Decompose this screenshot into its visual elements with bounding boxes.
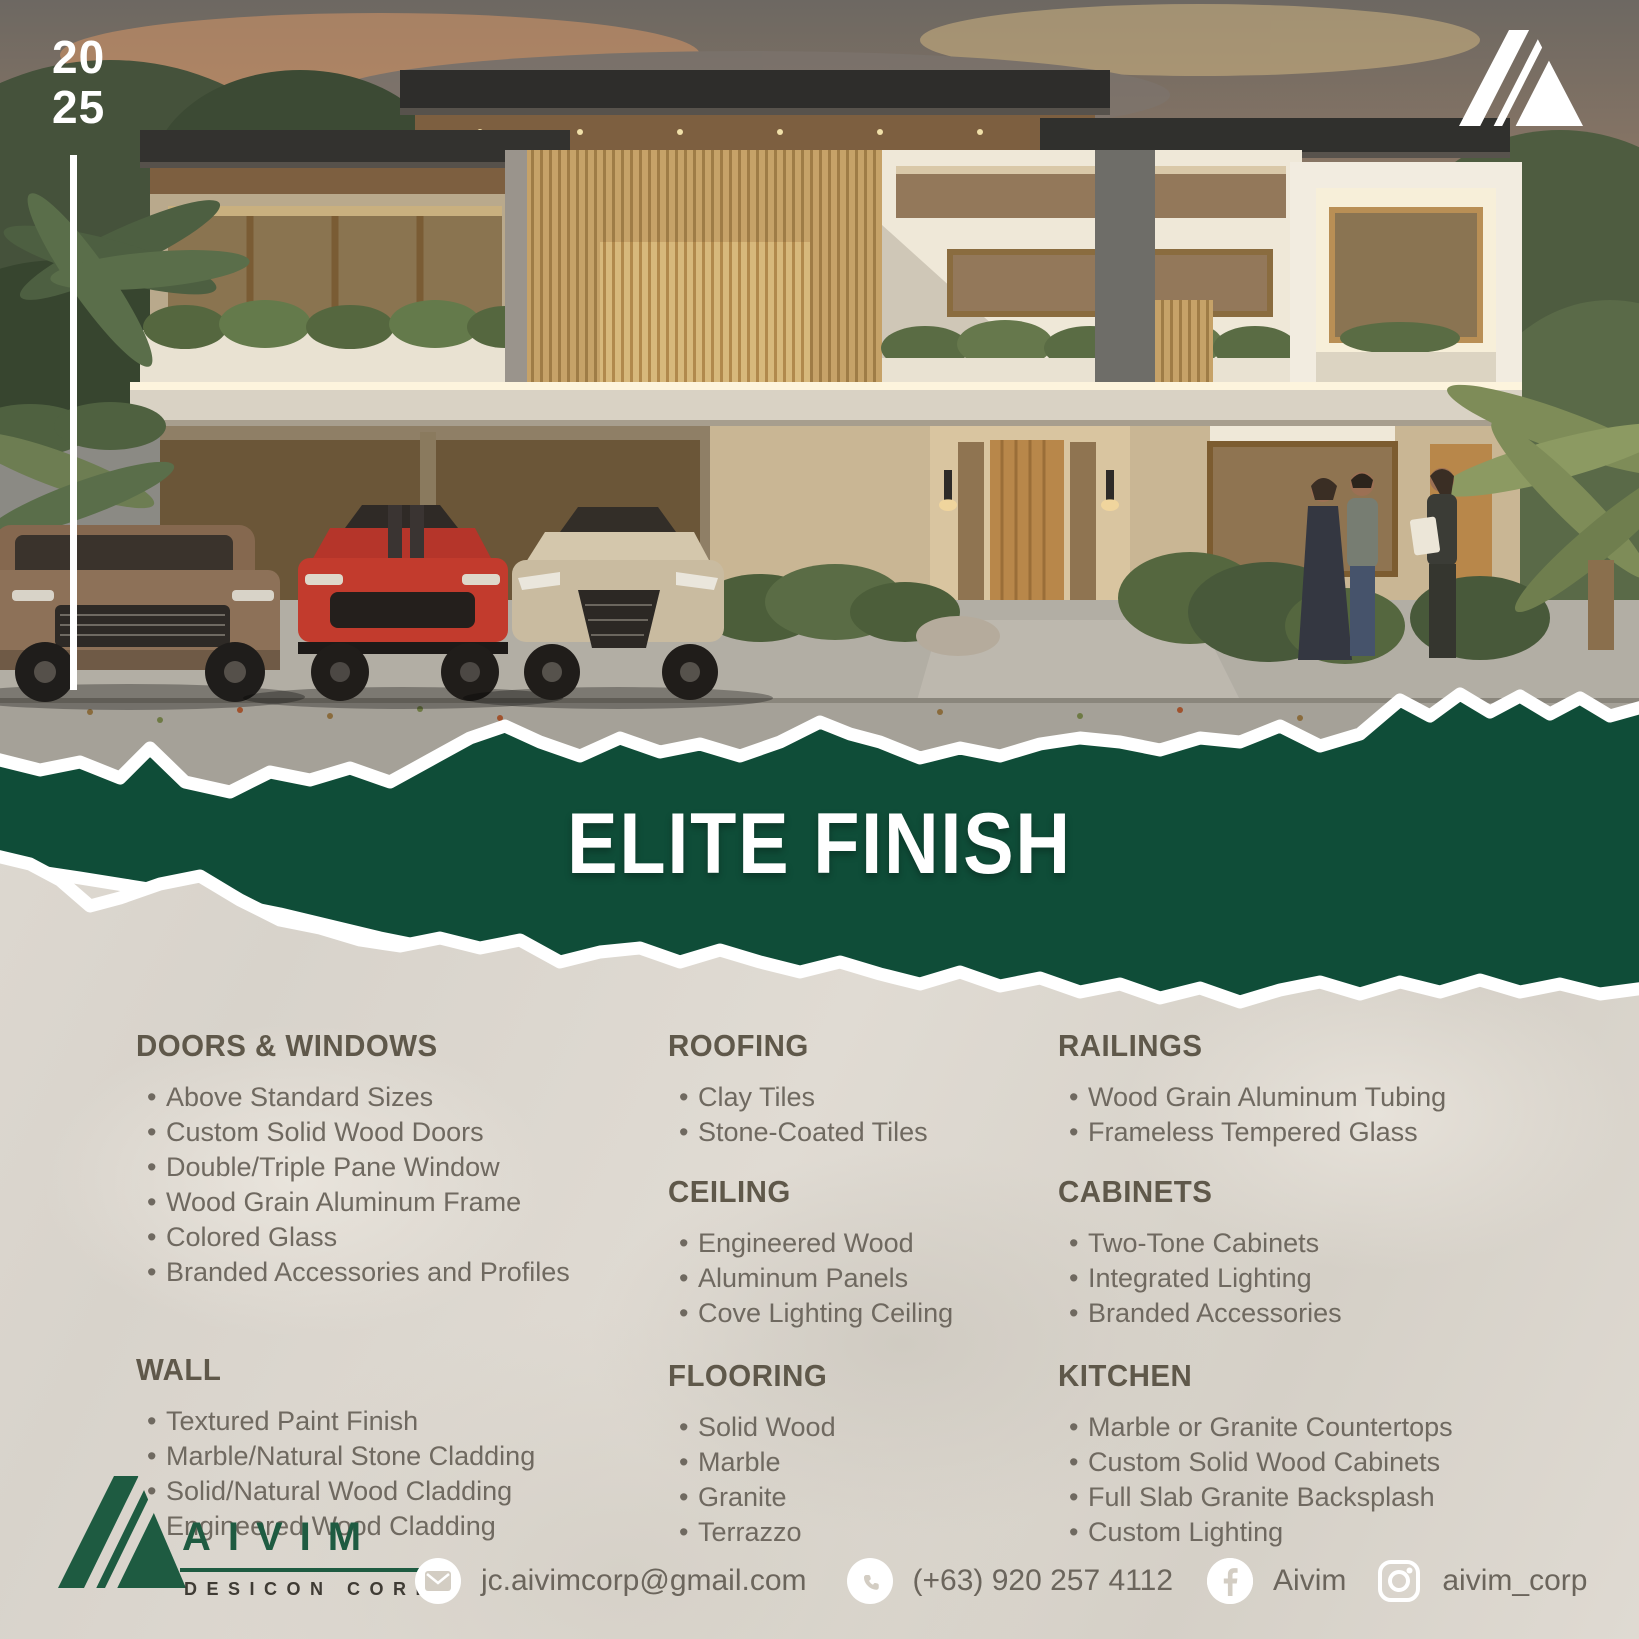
entry-door bbox=[930, 426, 1130, 626]
spec-column-3: RAILINGS Wood Grain Aluminum Tubing Fram… bbox=[1058, 1028, 1588, 1550]
spec-item: Granite bbox=[668, 1480, 1058, 1515]
spec-item: Solid Wood bbox=[668, 1410, 1058, 1445]
email-text: jc.aivimcorp@gmail.com bbox=[481, 1564, 807, 1598]
spec-item: Stone-Coated Tiles bbox=[668, 1115, 1058, 1150]
floor-slab bbox=[130, 390, 1522, 420]
facebook-handle: Aivim bbox=[1273, 1564, 1346, 1598]
contact-facebook: Aivim bbox=[1207, 1558, 1346, 1604]
roof-right bbox=[1040, 118, 1510, 152]
spec-item: Custom Solid Wood Cabinets bbox=[1058, 1445, 1588, 1480]
spec-section-flooring: FLOORING Solid Wood Marble Granite Terra… bbox=[668, 1358, 1058, 1550]
spec-item: Cove Lighting Ceiling bbox=[668, 1296, 1058, 1331]
spec-item: Marble bbox=[668, 1445, 1058, 1480]
spec-item: Above Standard Sizes bbox=[136, 1080, 636, 1115]
person-man bbox=[1347, 498, 1378, 568]
section-title: WALL bbox=[136, 1352, 611, 1388]
phone-text: (+63) 920 257 4112 bbox=[913, 1564, 1174, 1598]
phone-icon bbox=[847, 1558, 893, 1604]
spec-item: Custom Solid Wood Doors bbox=[136, 1115, 636, 1150]
spec-section-kitchen: KITCHEN Marble or Granite Countertops Cu… bbox=[1058, 1358, 1588, 1550]
section-title: CEILING bbox=[668, 1174, 1039, 1210]
spec-item: Branded Accessories bbox=[1058, 1296, 1588, 1331]
brand-subtitle: DESICON CORP bbox=[180, 1572, 437, 1600]
spec-item: Frameless Tempered Glass bbox=[1058, 1115, 1588, 1150]
hero-image bbox=[0, 0, 1639, 830]
spec-item: Clay Tiles bbox=[668, 1080, 1058, 1115]
section-title: FLOORING bbox=[668, 1358, 1039, 1394]
envelope-icon bbox=[415, 1558, 461, 1604]
footer-contacts: jc.aivimcorp@gmail.com (+63) 920 257 411… bbox=[415, 1558, 1587, 1604]
spec-column-2: ROOFING Clay Tiles Stone-Coated Tiles CE… bbox=[668, 1028, 1058, 1550]
spec-item: Custom Lighting bbox=[1058, 1515, 1588, 1550]
footer-brand-text: AIVIM DESICON CORP bbox=[180, 1515, 437, 1602]
house-illustration bbox=[0, 0, 1639, 830]
footer-brand-logo: AIVIM DESICON CORP bbox=[56, 1462, 437, 1602]
spec-section-doors-windows: DOORS & WINDOWS Above Standard Sizes Cus… bbox=[136, 1028, 636, 1290]
section-title: DOORS & WINDOWS bbox=[136, 1028, 611, 1064]
spec-item: Two-Tone Cabinets bbox=[1058, 1226, 1588, 1261]
spec-item: Branded Accessories and Profiles bbox=[136, 1255, 636, 1290]
banner-title: ELITE FINISH bbox=[98, 796, 1540, 892]
frame-box-window bbox=[1290, 162, 1522, 408]
section-title: ROOFING bbox=[668, 1028, 1039, 1064]
spec-item: Aluminum Panels bbox=[668, 1261, 1058, 1296]
spec-section-roofing: ROOFING Clay Tiles Stone-Coated Tiles bbox=[668, 1028, 1058, 1150]
spec-item: Colored Glass bbox=[136, 1220, 636, 1255]
brand-name: AIVIM bbox=[180, 1515, 437, 1572]
spec-item: Textured Paint Finish bbox=[136, 1404, 636, 1439]
a-mark-icon bbox=[1449, 22, 1587, 130]
roof-main bbox=[400, 70, 1110, 108]
contact-instagram: aivim_corp bbox=[1376, 1558, 1587, 1604]
spec-section-cabinets: CABINETS Two-Tone Cabinets Integrated Li… bbox=[1058, 1174, 1588, 1331]
contact-phone: (+63) 920 257 4112 bbox=[847, 1558, 1174, 1604]
instagram-icon bbox=[1376, 1558, 1422, 1604]
spec-item: Engineered Wood bbox=[668, 1226, 1058, 1261]
rock bbox=[916, 616, 1000, 656]
spec-section-ceiling: CEILING Engineered Wood Aluminum Panels … bbox=[668, 1174, 1058, 1331]
year-label: 20 25 bbox=[52, 32, 105, 132]
spec-item: Wood Grain Aluminum Frame bbox=[136, 1185, 636, 1220]
instagram-handle: aivim_corp bbox=[1442, 1564, 1587, 1598]
spec-item: Double/Triple Pane Window bbox=[136, 1150, 636, 1185]
section-title: RAILINGS bbox=[1058, 1028, 1562, 1064]
spec-item: Full Slab Granite Backsplash bbox=[1058, 1480, 1588, 1515]
poster: 20 25 ELITE FINISH DOORS & WINDOWS Above… bbox=[0, 0, 1639, 1639]
section-title: CABINETS bbox=[1058, 1174, 1562, 1210]
contact-email: jc.aivimcorp@gmail.com bbox=[415, 1558, 807, 1604]
spec-item: Wood Grain Aluminum Tubing bbox=[1058, 1080, 1588, 1115]
spec-item: Integrated Lighting bbox=[1058, 1261, 1588, 1296]
section-title: KITCHEN bbox=[1058, 1358, 1562, 1394]
facebook-icon bbox=[1207, 1558, 1253, 1604]
spec-item: Terrazzo bbox=[668, 1515, 1058, 1550]
spec-item: Marble or Granite Countertops bbox=[1058, 1410, 1588, 1445]
year-divider-line bbox=[70, 155, 77, 690]
a-mark-green-icon bbox=[56, 1462, 186, 1602]
spec-section-railings: RAILINGS Wood Grain Aluminum Tubing Fram… bbox=[1058, 1028, 1588, 1150]
